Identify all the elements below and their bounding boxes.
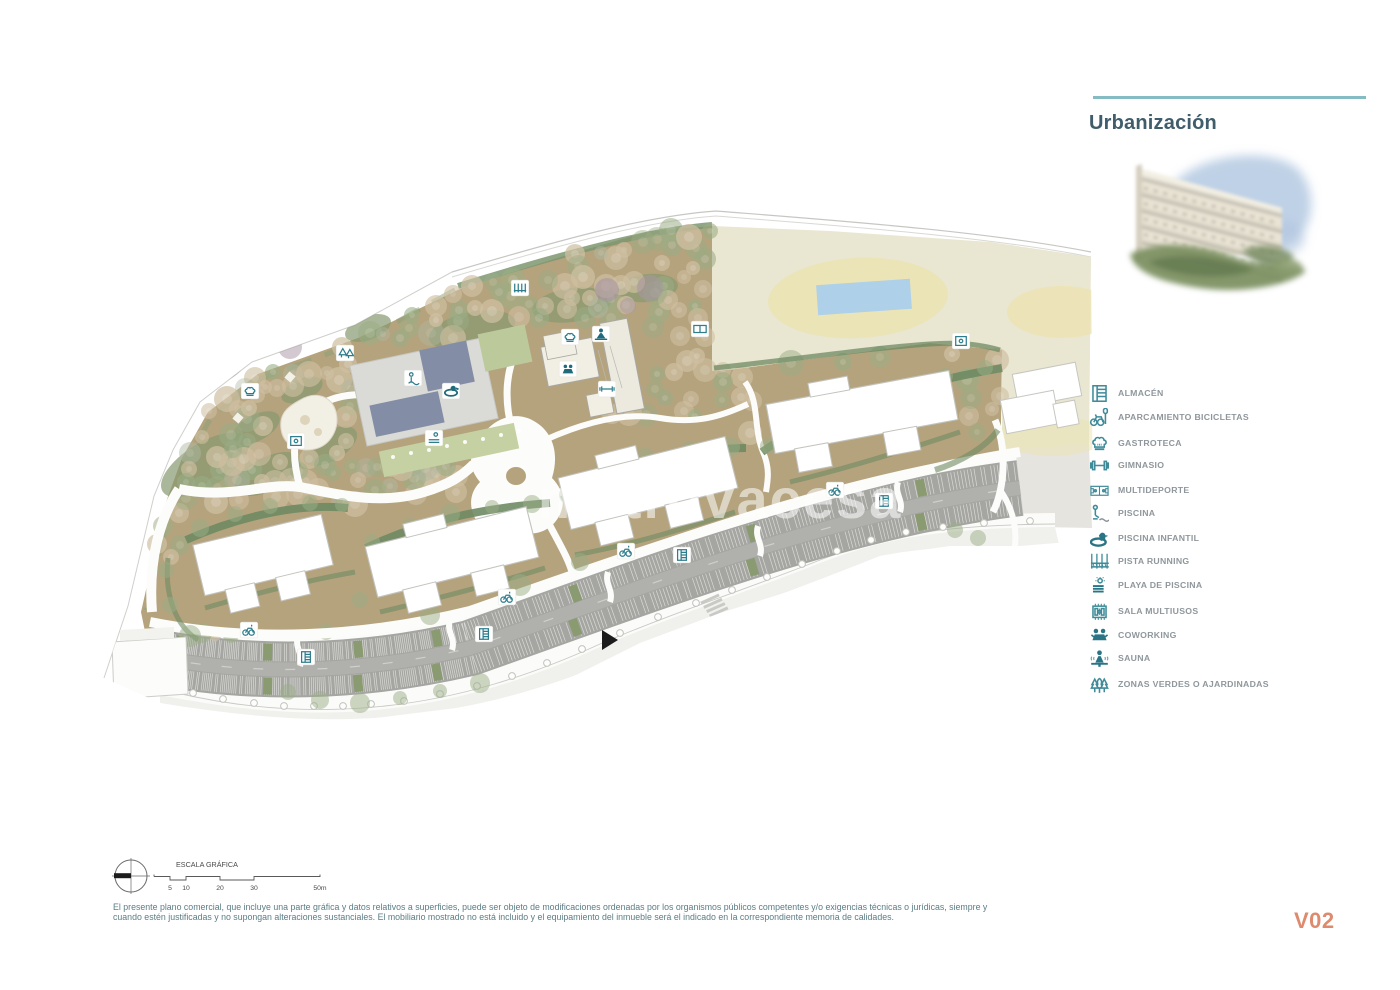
svg-text:metrovacesa: metrovacesa <box>538 467 902 530</box>
